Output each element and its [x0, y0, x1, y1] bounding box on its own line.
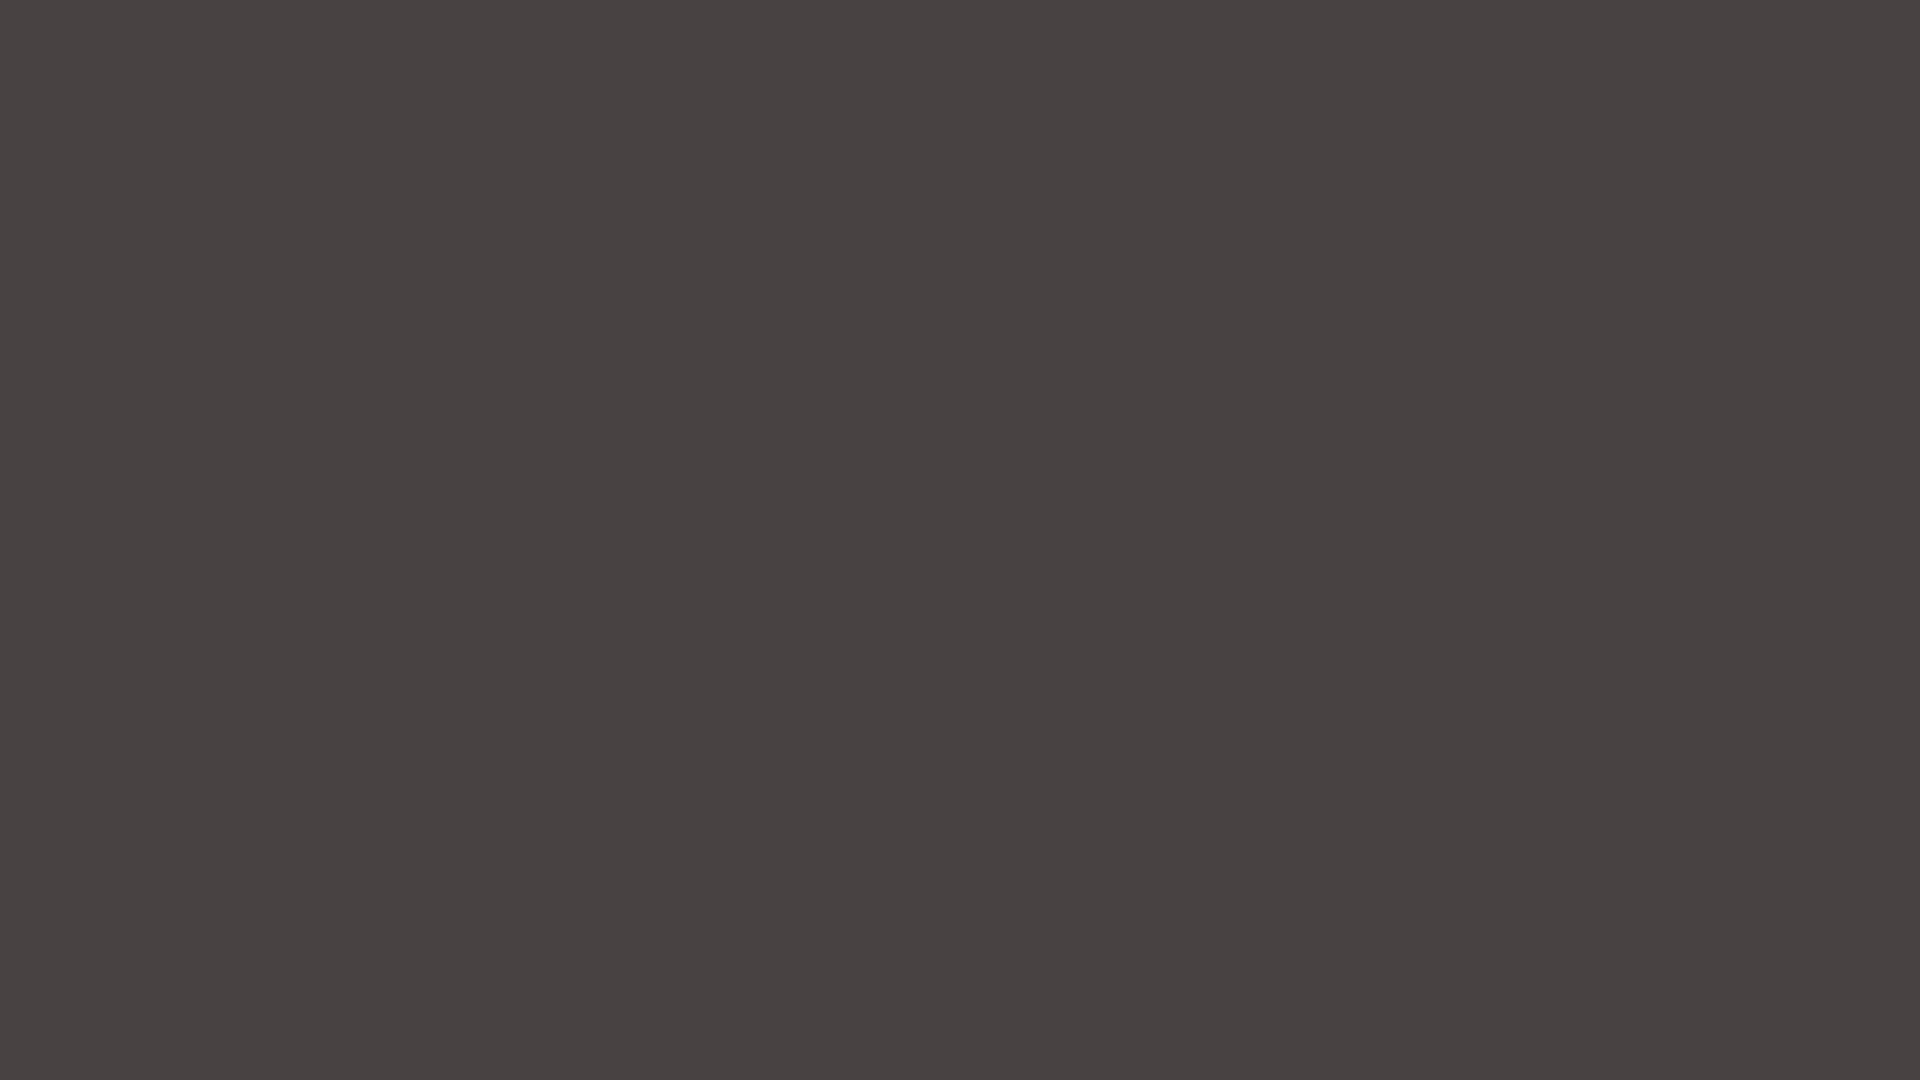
scene-canvas[interactable]	[0, 0, 1920, 1080]
game-viewport[interactable]	[0, 0, 1920, 1080]
